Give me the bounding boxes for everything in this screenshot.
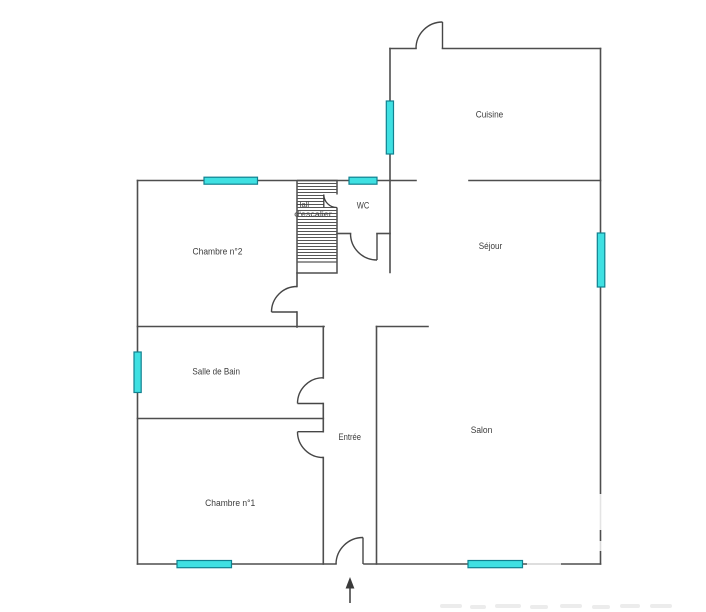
svg-text:Chambre n°2: Chambre n°2 — [193, 247, 243, 257]
svg-text:Séjour: Séjour — [479, 241, 503, 251]
svg-text:d'escalier: d'escalier — [294, 210, 332, 219]
svg-text:Chambre n°1: Chambre n°1 — [205, 498, 255, 508]
svg-text:Salle de Bain: Salle de Bain — [192, 366, 240, 376]
svg-text:WC: WC — [357, 201, 370, 211]
svg-text:Salon: Salon — [471, 425, 493, 435]
svg-text:Entrée: Entrée — [339, 432, 362, 442]
svg-text:Cuisine: Cuisine — [476, 110, 504, 120]
svg-text:Hall: Hall — [296, 200, 309, 209]
